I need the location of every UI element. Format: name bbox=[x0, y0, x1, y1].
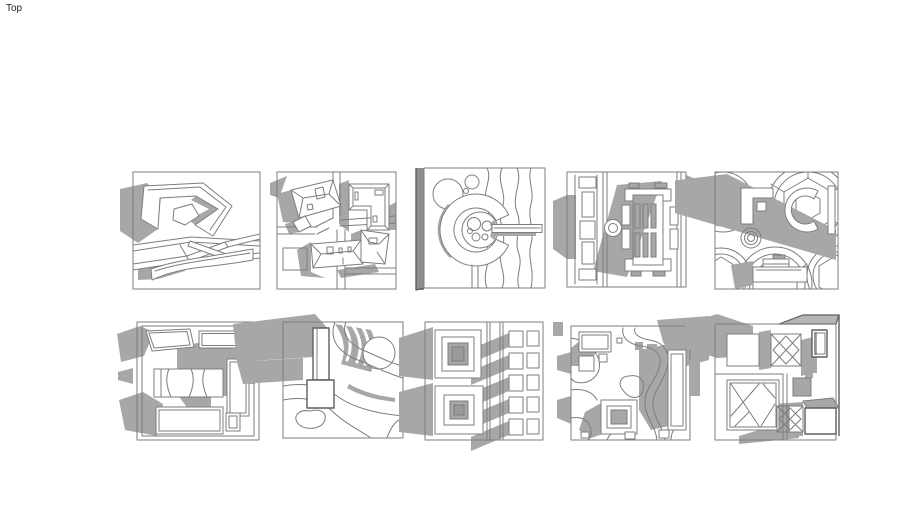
tile-3-side-face bbox=[416, 168, 424, 290]
modeling-viewport[interactable]: Top bbox=[0, 0, 910, 512]
view-label: Top bbox=[6, 3, 22, 14]
tile-10-braced-frames-courtyard-plan[interactable] bbox=[675, 284, 876, 480]
tile-4-geometry bbox=[567, 172, 686, 287]
